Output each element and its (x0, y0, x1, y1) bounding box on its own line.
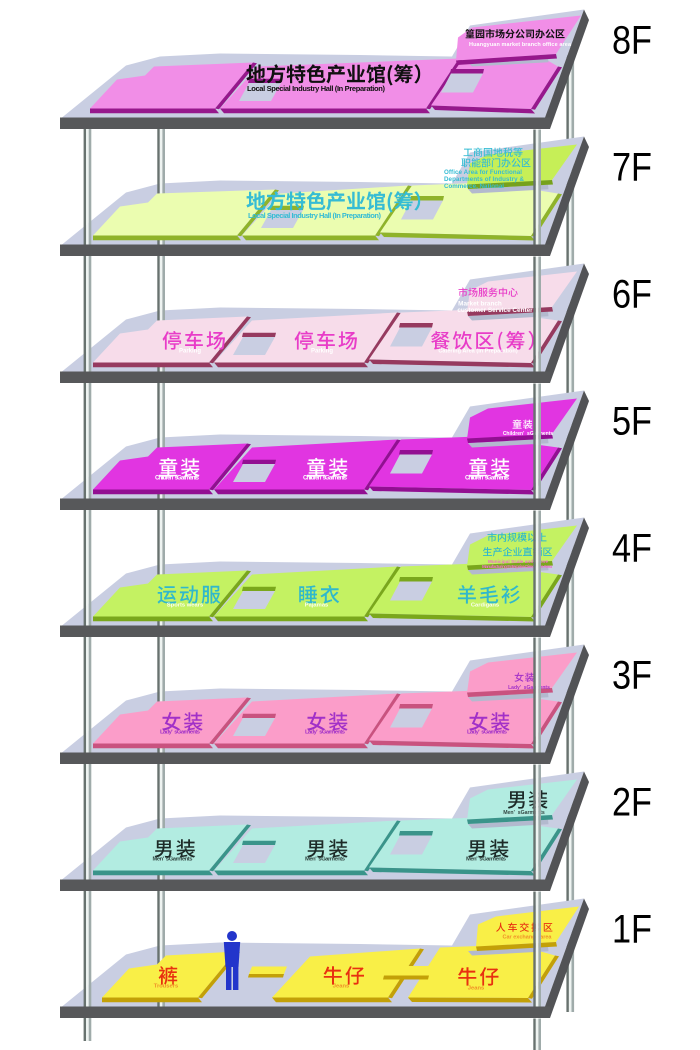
svg-text:Children' sGarments: Children' sGarments (503, 431, 554, 437)
svg-text:Catering Area (In Preparation): Catering Area (In Preparation) (438, 349, 518, 355)
svg-text:Manufacturing Enterprise Direc: Manufacturing Enterprise Direct Sale Are… (482, 564, 552, 569)
svg-text:Men' sGarments: Men' sGarments (466, 857, 506, 863)
svg-text:Men' sGarments: Men' sGarments (305, 857, 345, 863)
svg-text:2F: 2F (612, 781, 652, 825)
svg-text:5F: 5F (612, 400, 652, 444)
svg-text:Lady' sGarments: Lady' sGarments (305, 730, 345, 736)
svg-text:4F: 4F (612, 527, 652, 571)
svg-text:Jeans: Jeans (468, 986, 484, 992)
svg-text:Lady' sGarments: Lady' sGarments (160, 730, 200, 736)
svg-text:3F: 3F (612, 654, 652, 698)
svg-text:Trousers: Trousers (154, 984, 179, 990)
svg-text:8F: 8F (612, 19, 652, 63)
svg-text:Cardigans: Cardigans (471, 603, 499, 609)
svg-text:Children' sGarments: Children' sGarments (155, 476, 200, 482)
svg-text:Lady' sGarments: Lady' sGarments (467, 730, 507, 736)
svg-text:7F: 7F (612, 146, 652, 190)
svg-text:1F: 1F (612, 908, 652, 952)
svg-text:Car exchange area: Car exchange area (503, 935, 553, 941)
svg-text:Local Special Industry Hall (I: Local Special Industry Hall (In Preparat… (248, 211, 382, 220)
svg-text:Children' sGarments: Children' sGarments (465, 476, 510, 482)
svg-text:Departments of Industry &: Departments of Industry & (444, 176, 525, 183)
svg-text:Sports wears: Sports wears (167, 603, 203, 609)
svg-text:Jeans: Jeans (333, 984, 349, 990)
svg-text:Pajamas: Pajamas (305, 603, 329, 609)
svg-text:Children' sGarments: Children' sGarments (303, 476, 348, 482)
svg-text:Men' sGarments: Men' sGarments (153, 857, 193, 863)
svg-text:Lady' sGarments: Lady' sGarments (508, 685, 550, 691)
svg-text:Parking: Parking (179, 349, 201, 355)
svg-text:Huangyuan market branch office: Huangyuan market branch office area (469, 42, 572, 48)
svg-text:6F: 6F (612, 273, 652, 317)
svg-text:Office Area for Functional: Office Area for Functional (444, 169, 522, 176)
svg-text:customer Service Center: customer Service Center (457, 307, 533, 314)
svg-text:Local Special Industry Hall (I: Local Special Industry Hall (In Preparat… (247, 84, 386, 93)
svg-text:Parking: Parking (311, 349, 333, 355)
svg-text:Commerce, National: Commerce, National (444, 183, 504, 190)
